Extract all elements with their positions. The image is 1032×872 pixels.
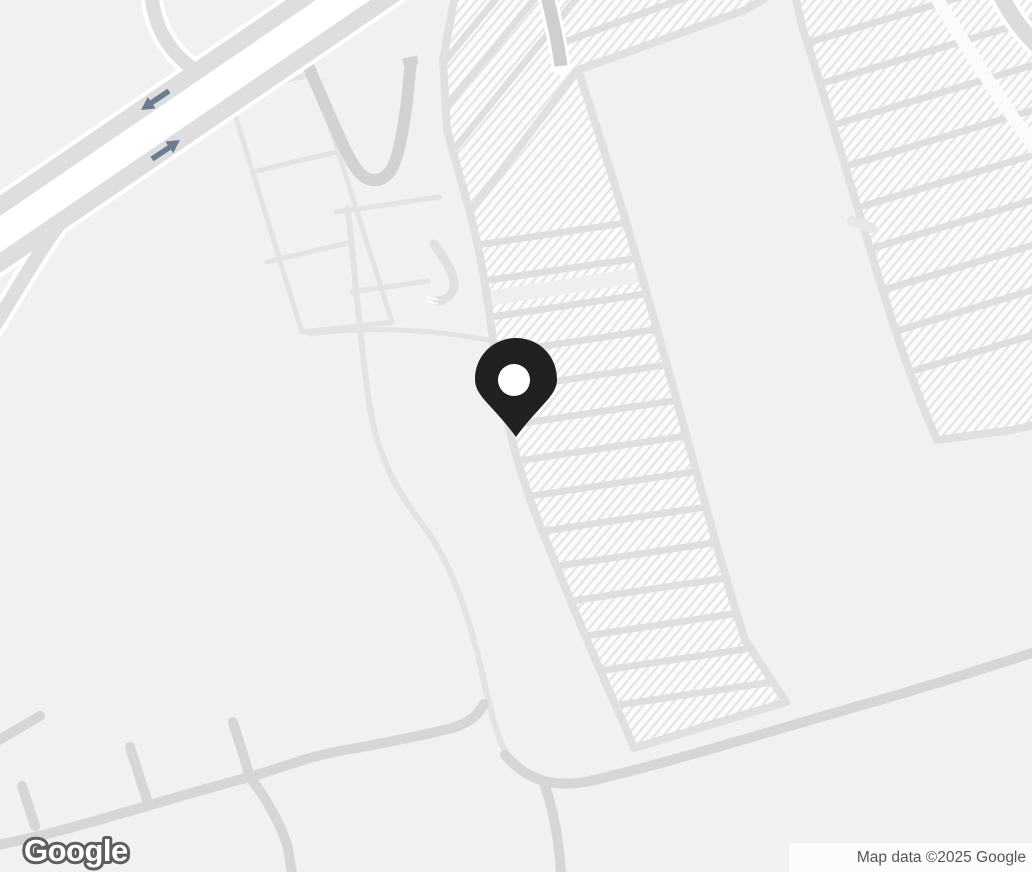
map-canvas[interactable]: Google Map data ©2025 Google <box>0 0 1032 872</box>
map-tiles <box>0 0 1032 872</box>
google-logo-text: Google <box>24 833 128 868</box>
map-attribution: Map data ©2025 Google <box>857 849 1026 867</box>
pin-hole <box>498 364 530 396</box>
google-logo[interactable]: Google <box>20 828 170 872</box>
attribution-bar: Map data ©2025 Google <box>789 843 1032 872</box>
